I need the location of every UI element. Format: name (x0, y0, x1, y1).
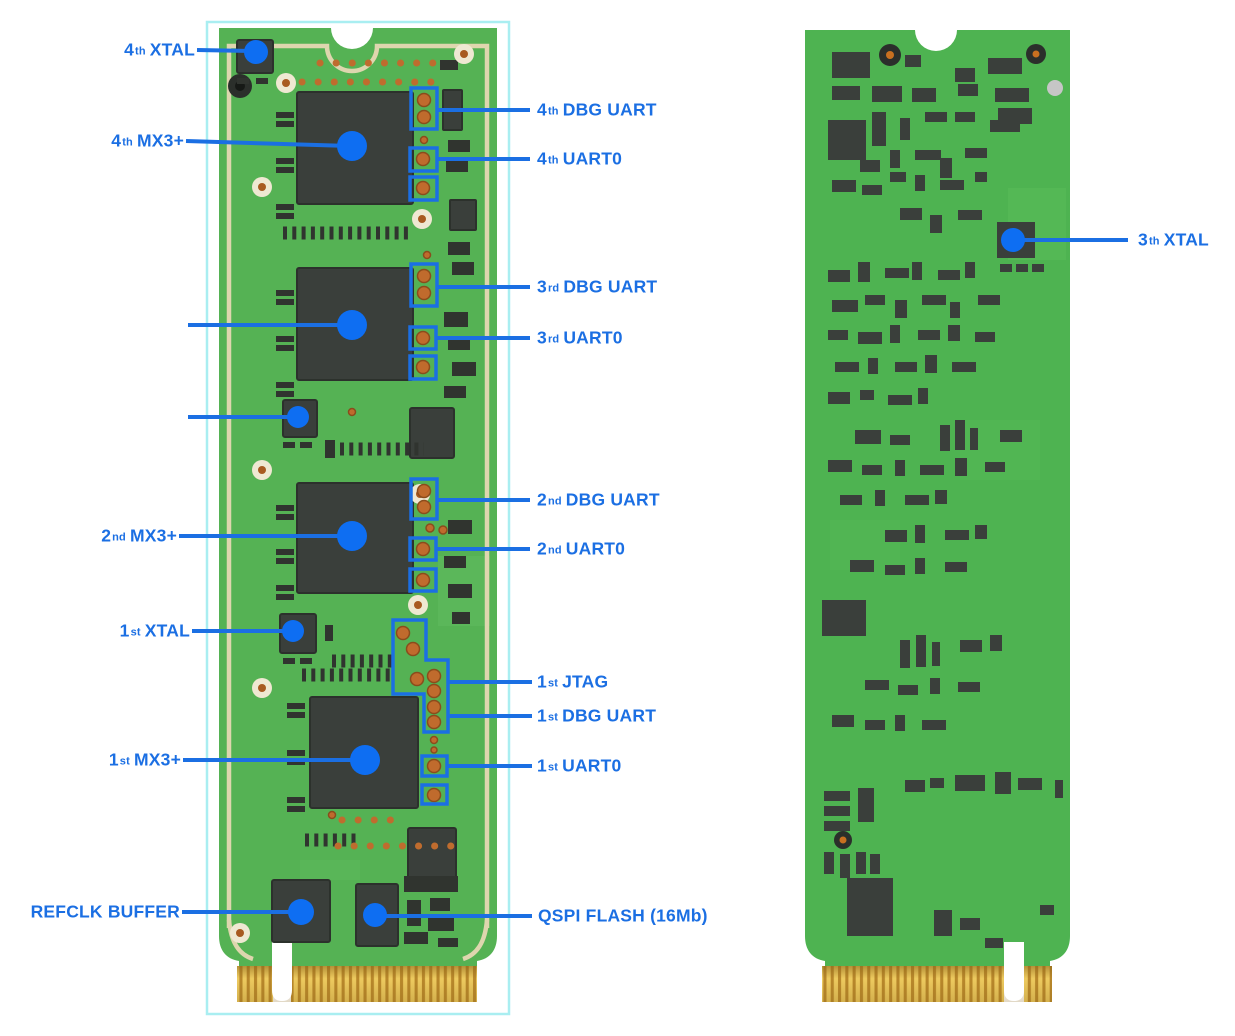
label-ordinal-suffix: st (548, 712, 558, 724)
label-1st-xtal: 1stXTAL (120, 621, 190, 642)
label-text: MX3+ (130, 526, 177, 546)
label-ordinal-suffix: th (1149, 236, 1160, 248)
front-board (207, 22, 509, 1014)
label-ordinal: 1 (537, 672, 547, 692)
label-ordinal: 2 (537, 490, 547, 510)
label-ordinal: 2 (537, 539, 547, 559)
label-ordinal: 1 (537, 756, 547, 776)
label-1st-dbg-uart: 1stDBG UART (537, 706, 656, 727)
label-ordinal: 4 (111, 131, 121, 151)
dot-qspi (363, 903, 387, 927)
label-4th-mx3: 4thMX3+ (111, 131, 184, 152)
label-ordinal: 1 (120, 621, 130, 641)
label-ordinal-suffix: th (548, 155, 559, 167)
label-text: MX3+ (137, 131, 184, 151)
label-text: XTAL (150, 40, 195, 60)
label-1st-uart0: 1stUART0 (537, 756, 621, 777)
label-ordinal-suffix: nd (112, 532, 126, 544)
label-ordinal: 4 (124, 40, 134, 60)
dot-1st-mx3 (350, 745, 380, 775)
label-ordinal: 3 (537, 277, 547, 297)
label-ordinal: 1 (537, 706, 547, 726)
label-3rd-uart0: 3rdUART0 (537, 328, 623, 349)
label-3th-xtal: 3thXTAL (1138, 230, 1209, 251)
dot-3rd-mx3 (337, 310, 367, 340)
label-text: JTAG (562, 672, 608, 692)
label-text: UART0 (563, 328, 622, 348)
label-text: UART0 (566, 539, 625, 559)
dot-4th-xtal (244, 40, 268, 64)
key-notch-back (1004, 942, 1024, 1001)
label-ordinal-suffix: st (120, 756, 130, 768)
label-4th-uart0: 4thUART0 (537, 149, 622, 170)
label-refclk-buffer: REFCLK BUFFER (30, 902, 180, 923)
label-ordinal-suffix: nd (548, 545, 562, 557)
label-ordinal-suffix: st (131, 627, 141, 639)
dot-1st-xtal (282, 620, 304, 642)
label-ordinal-suffix: st (548, 678, 558, 690)
label-ordinal-suffix: th (135, 46, 146, 58)
label-text: DBG UART (563, 100, 657, 120)
label-ordinal-suffix: th (122, 137, 133, 149)
label-3rd-dbg-uart: 3rdDBG UART (537, 277, 657, 298)
label-text: DBG UART (562, 706, 656, 726)
label-qspi-flash: QSPI FLASH (16Mb) (537, 906, 708, 927)
label-4th-xtal: 4thXTAL (124, 40, 195, 61)
pcb-annotation-figure: 4thXTAL 4thMX3+ 2ndMX3+ 1stXTAL 1stMX3+ … (0, 0, 1235, 1036)
label-ordinal-suffix: th (548, 106, 559, 118)
label-ordinal: 1 (109, 750, 119, 770)
label-text: QSPI FLASH (16Mb) (538, 906, 708, 926)
label-1st-jtag: 1stJTAG (537, 672, 608, 693)
label-text: UART0 (562, 756, 621, 776)
label-ordinal-suffix: rd (548, 334, 559, 346)
label-2nd-uart0: 2ndUART0 (537, 539, 625, 560)
label-4th-dbg-uart: 4thDBG UART (537, 100, 657, 121)
key-notch (272, 942, 292, 1001)
label-ordinal-suffix: st (548, 762, 558, 774)
label-text: DBG UART (563, 277, 657, 297)
label-text: REFCLK BUFFER (31, 902, 180, 922)
label-ordinal-suffix: nd (548, 496, 562, 508)
dot-refclk (288, 899, 314, 925)
label-2nd-dbg-uart: 2ndDBG UART (537, 490, 660, 511)
label-text: DBG UART (566, 490, 660, 510)
leader-4th-xtal (197, 50, 252, 51)
label-ordinal: 3 (1138, 230, 1148, 250)
label-text: MX3+ (134, 750, 181, 770)
label-ordinal-suffix: rd (548, 283, 559, 295)
dot-3th-xtal (1001, 228, 1025, 252)
dot-2nd-mx3 (337, 521, 367, 551)
dot-mid-xtal (287, 406, 309, 428)
label-text: UART0 (563, 149, 622, 169)
back-board (805, 30, 1070, 1002)
label-ordinal: 4 (537, 149, 547, 169)
label-1st-mx3: 1stMX3+ (109, 750, 181, 771)
dot-4th-mx3 (337, 131, 367, 161)
label-2nd-mx3: 2ndMX3+ (101, 526, 177, 547)
label-ordinal: 3 (537, 328, 547, 348)
label-ordinal: 4 (537, 100, 547, 120)
label-text: XTAL (145, 621, 190, 641)
label-ordinal: 2 (101, 526, 111, 546)
label-text: XTAL (1164, 230, 1209, 250)
